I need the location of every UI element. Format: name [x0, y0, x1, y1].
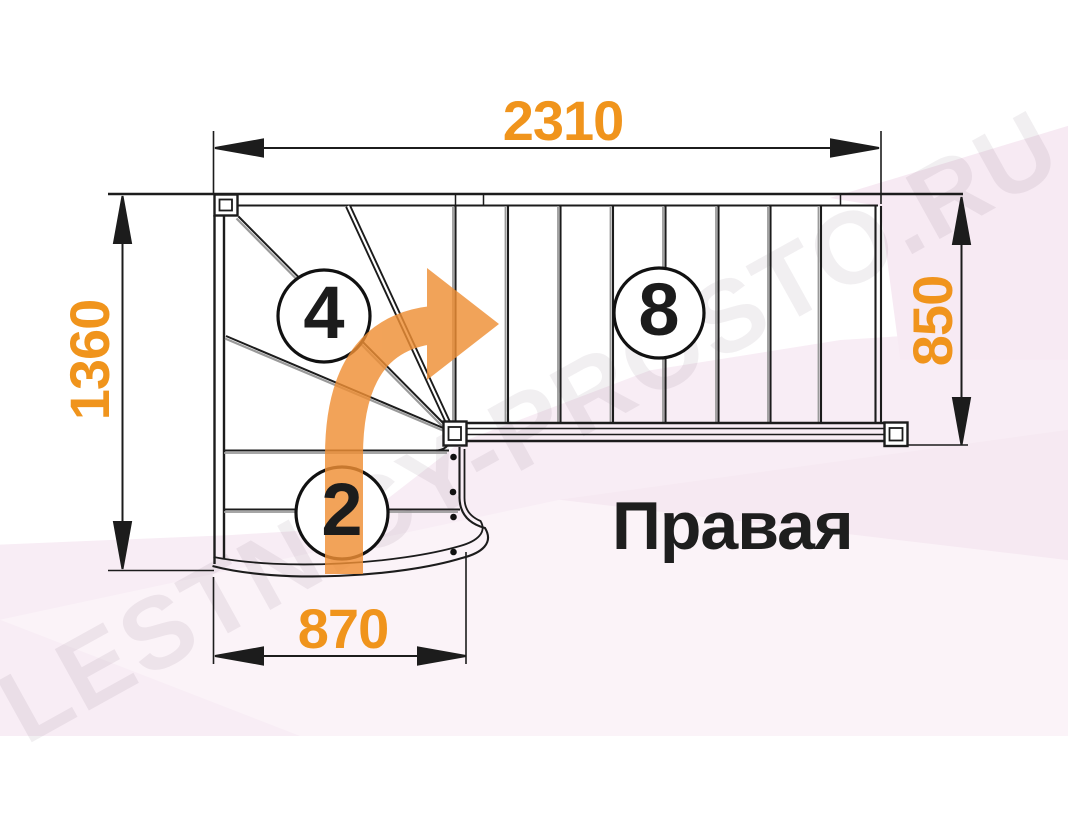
dimension-top-2310: 2310	[503, 93, 624, 149]
lower-flight-step-count: 2	[321, 473, 362, 547]
orientation-label: Правая	[612, 492, 853, 560]
dim-arrow-left-870	[215, 648, 263, 665]
upper-flight-stringer	[467, 423, 884, 441]
dim-arrow-down-1360	[114, 522, 131, 569]
left-stringer-edge	[215, 215, 225, 564]
upper-flight-step-count: 8	[638, 273, 679, 347]
winder-step-count: 4	[303, 276, 344, 350]
dim-arrow-up-1360	[114, 196, 131, 243]
dim-arrow-right-2310	[831, 140, 879, 157]
dim-arrow-right-870	[418, 648, 466, 665]
dim-arrow-down-850	[953, 398, 970, 445]
stair-plan-page: { "watermark": { "text": "LESTNICY-PROST…	[0, 0, 1068, 736]
dimension-right-850: 850	[905, 276, 961, 366]
dimension-bottom-870: 870	[298, 601, 388, 657]
dimension-left-1360: 1360	[62, 300, 118, 421]
dim-arrow-left-2310	[215, 140, 263, 157]
baluster-dots	[450, 454, 457, 556]
dim-arrow-up-850	[953, 197, 970, 244]
dimension-lines	[114, 140, 970, 665]
